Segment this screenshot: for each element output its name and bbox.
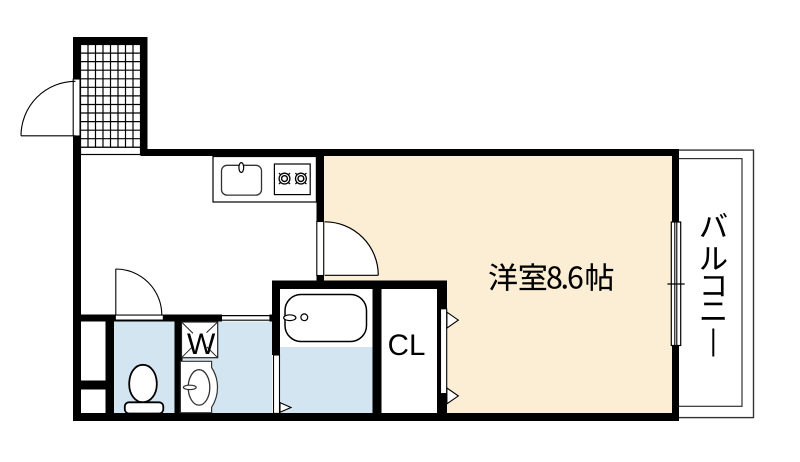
svg-text:W: W [187, 328, 216, 361]
svg-text:CL: CL [388, 329, 426, 362]
